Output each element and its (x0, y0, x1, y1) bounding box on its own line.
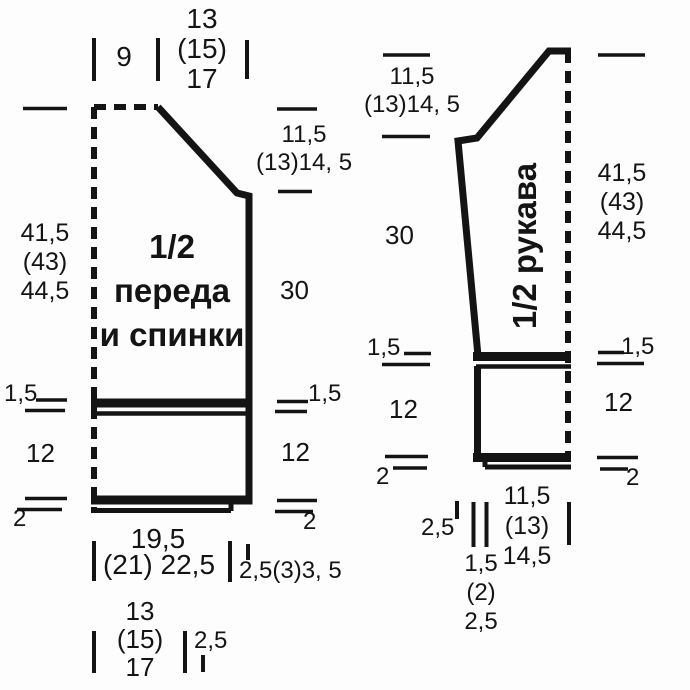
cap-depth-line2: (13)14, 5 (362, 91, 462, 119)
sleeve-rib-height-label-left: 12 (389, 396, 418, 422)
front-back-neck-depth-label: 11,5 (13)14, 5 (256, 121, 352, 177)
cast-on-line3: 17 (104, 653, 176, 681)
side-height-line1: 41,5 (7, 219, 83, 248)
sleeve-upper-height-label: 30 (385, 222, 414, 248)
sleeve-cap-depth-label: 11,5 (13)14, 5 (362, 63, 462, 119)
front-back-rib-height-label-left: 12 (26, 440, 55, 466)
sleeve-slant-width-label: 1,5 (2) 2,5 (453, 549, 509, 636)
cap-depth-line1: 11,5 (362, 63, 462, 91)
front-back-cast-on-width-label: 13 (15) 17 (104, 597, 176, 681)
front-back-side-height-label: 41,5 (43) 44,5 (7, 219, 83, 306)
piece-title-line3: и спинки (94, 313, 250, 357)
front-back-side-slant-label: 2,5(3)3, 5 (239, 559, 342, 583)
sleeve-piece-title: 1/2 рукава (505, 141, 545, 351)
piece-title-line1: 1/2 (94, 225, 250, 269)
sleeve-side-height-line1: 41,5 (585, 159, 659, 188)
wrist-width-line2: (13) (488, 511, 566, 541)
sleeve-hem-height-label-left: 2 (376, 465, 389, 489)
front-back-band-height-label-left: 1,5 (4, 382, 37, 406)
sleeve-side-height-line2: (43) (585, 188, 659, 217)
sleeve-band-height-label-right: 1,5 (621, 335, 654, 359)
piece-title-line2: переда (94, 269, 250, 313)
front-back-hem-height-label-right: 2 (303, 510, 316, 534)
cast-on-line2: (15) (104, 625, 176, 653)
side-height-line2: (43) (7, 248, 83, 277)
front-back-body-height-label: 30 (280, 277, 309, 303)
sleeve-hem-height-label-right: 2 (626, 466, 639, 490)
neck-depth-line2: (13)14, 5 (256, 149, 352, 177)
front-back-shoulder-width-label: 9 (103, 43, 145, 71)
front-back-band-height-label-right: 1,5 (308, 382, 341, 406)
neck-width-line1: 13 (158, 4, 246, 34)
wrist-width-line1: 11,5 (488, 481, 566, 511)
knitting-pattern-diagram: 13 (15) 17 9 11,5 (13)14, 5 41,5 (43) 44… (0, 0, 690, 690)
neck-width-line3: 17 (158, 64, 246, 94)
front-back-cast-on-slant-label: 2,5 (194, 629, 227, 653)
cast-on-line1: 13 (104, 597, 176, 625)
front-back-hip-width-bottom-label: (21) 22,5 (100, 551, 218, 579)
front-back-neck-width-label: 13 (15) 17 (158, 4, 246, 94)
front-back-hem-height-label-left: 2 (13, 507, 26, 531)
sleeve-rib-height-label-right: 12 (604, 389, 633, 415)
sleeve-seam-width-label: 2,5 (421, 516, 454, 540)
slant-width-line2: (2) (453, 578, 509, 607)
sleeve-side-height-label: 41,5 (43) 44,5 (585, 159, 659, 246)
slant-width-line1: 1,5 (453, 549, 509, 578)
side-height-line3: 44,5 (7, 277, 83, 306)
neck-width-line2: (15) (158, 34, 246, 64)
slant-width-line3: 2,5 (453, 607, 509, 636)
sleeve-side-height-line3: 44,5 (585, 217, 659, 246)
front-back-rib-height-label-right: 12 (281, 439, 310, 465)
front-back-piece-title: 1/2 переда и спинки (94, 225, 250, 357)
sleeve-band-height-label-left: 1,5 (367, 336, 400, 360)
neck-depth-line1: 11,5 (256, 121, 352, 149)
